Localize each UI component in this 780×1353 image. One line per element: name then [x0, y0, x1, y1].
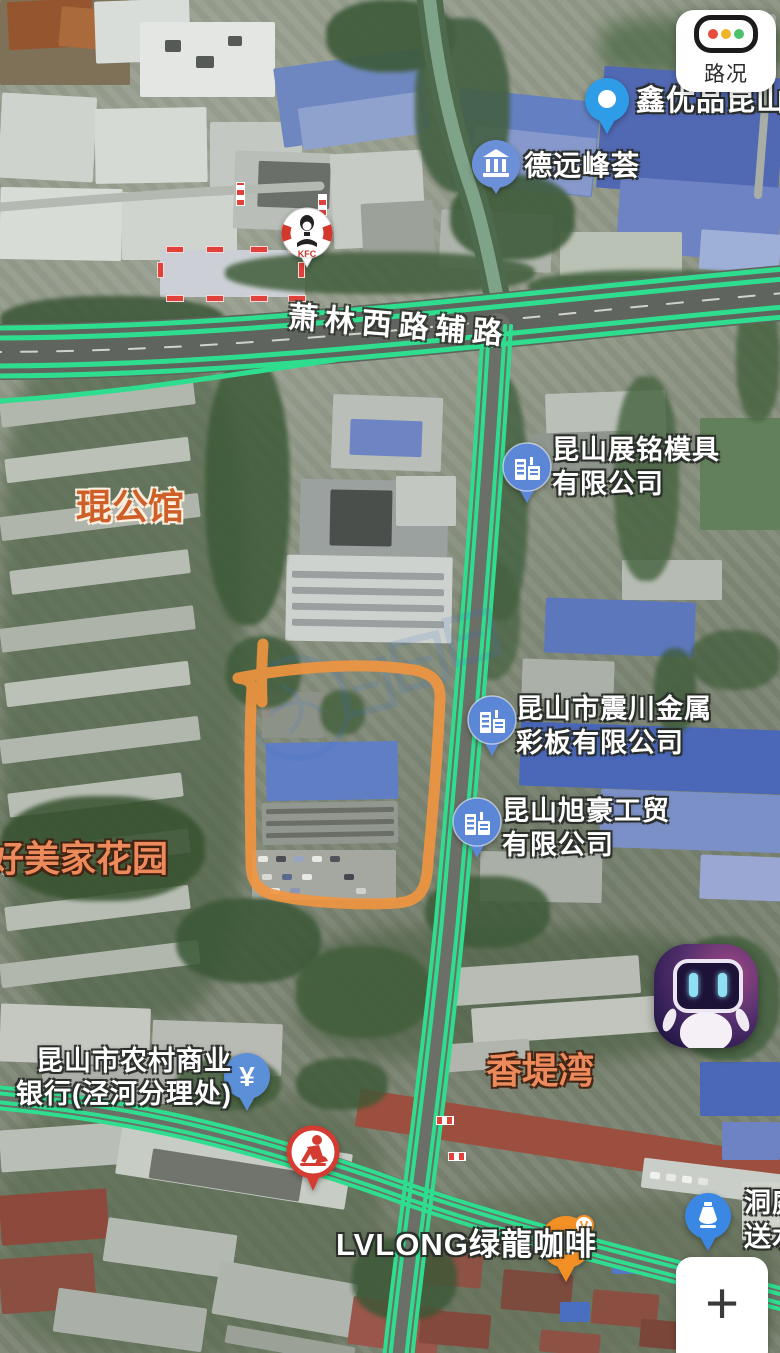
plus-icon: +: [705, 1275, 739, 1333]
barrier-marker: [448, 1152, 466, 1161]
barrier-marker: [250, 246, 268, 253]
barrier-marker: [206, 246, 224, 253]
barrier-marker: [206, 295, 224, 302]
poi-label-line: 昆山展铭模具: [552, 433, 720, 467]
poi-label-line: 昆山市农村商业: [36, 1044, 232, 1078]
location-pin-icon[interactable]: [581, 76, 633, 140]
poi-label-line: 昆山市震川金属: [516, 692, 712, 726]
poi-label-zhenchuan[interactable]: 昆山市震川金属 彩板有限公司: [516, 692, 712, 760]
robot-face-icon: [673, 959, 743, 1013]
zoom-in-button[interactable]: +: [676, 1257, 768, 1353]
traffic-button-label: 路况: [704, 58, 748, 88]
poi-label-zhanming[interactable]: 昆山展铭模具 有限公司: [552, 433, 720, 501]
poi-label-line: 有限公司: [552, 467, 720, 501]
barrier-marker: [436, 1116, 454, 1125]
poi-label-line: 有限公司: [502, 828, 670, 862]
kfc-pin-label: KFC: [298, 249, 317, 259]
ai-assistant-button[interactable]: [654, 944, 758, 1048]
barrier-markers: [0, 0, 780, 1353]
barrier-marker: [236, 182, 245, 206]
poi-label-line: 洞庭山: [744, 1186, 780, 1220]
kfc-pin[interactable]: KFC: [279, 205, 335, 271]
poi-label-deyuan[interactable]: 德远峰荟: [524, 149, 640, 183]
water-pin-icon[interactable]: [681, 1191, 735, 1255]
poi-label-line: 昆山旭豪工贸: [502, 794, 670, 828]
barrier-marker: [166, 246, 184, 253]
barrier-marker: [166, 295, 184, 302]
building-badge-icon[interactable]: [470, 138, 522, 196]
yuan-symbol: ¥: [239, 1061, 255, 1092]
area-label-kungongguan[interactable]: 琨公馆: [76, 478, 184, 530]
roadwork-pin-icon[interactable]: [284, 1123, 342, 1193]
company-pin-icon[interactable]: [450, 796, 504, 862]
poi-label-xuhao[interactable]: 昆山旭豪工贸 有限公司: [502, 794, 670, 862]
area-label-haomeijia[interactable]: 好美家花园: [0, 830, 168, 882]
area-label-xiangtiwan[interactable]: 香堤湾: [486, 1042, 594, 1094]
poi-label-line: 银行(泾河分理处): [16, 1077, 232, 1111]
traffic-conditions-button[interactable]: 路况: [676, 10, 776, 92]
company-pin-icon[interactable]: [500, 441, 554, 507]
map-canvas[interactable]: KFC ¥: [0, 0, 780, 1353]
company-pin-icon[interactable]: [465, 694, 519, 760]
poi-label-lvlong[interactable]: LVLONG绿龍咖啡: [336, 1228, 597, 1262]
traffic-light-icon: [694, 15, 758, 53]
barrier-marker: [250, 295, 268, 302]
poi-label-line: 送水: [744, 1220, 780, 1254]
poi-label-line: 彩板有限公司: [516, 726, 712, 760]
barrier-marker: [157, 262, 164, 278]
